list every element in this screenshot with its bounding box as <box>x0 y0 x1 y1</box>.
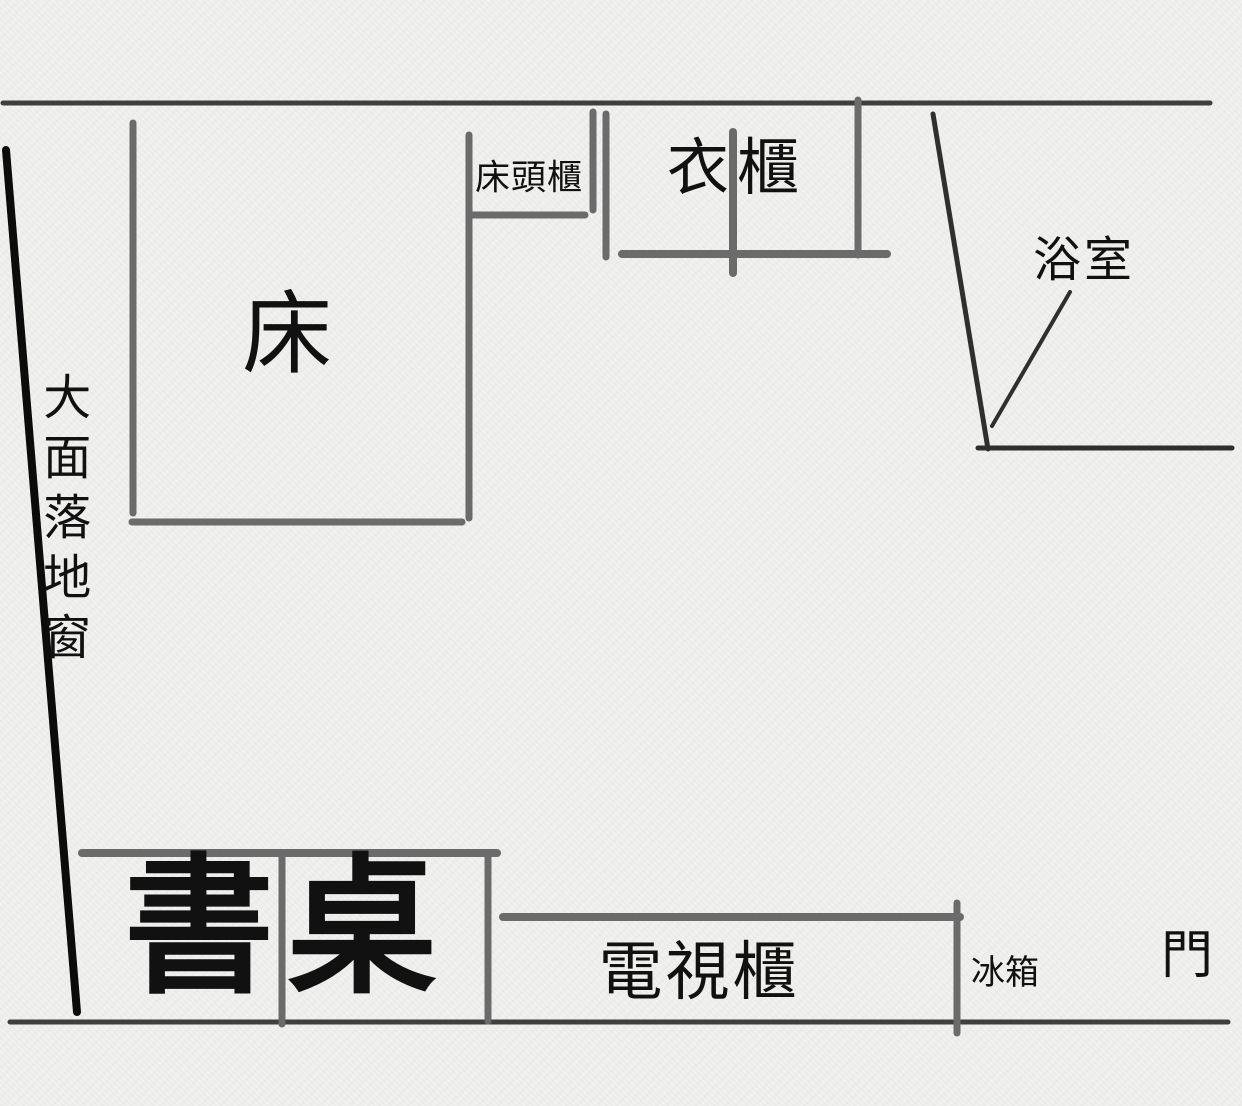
bathroom-left-wall-line <box>933 114 988 449</box>
bed-label: 床 <box>242 290 332 380</box>
desk-label: 書桌 <box>124 852 450 1002</box>
floor-plan-canvas: 床 床頭櫃 衣櫃 浴室 大面落地窗 書桌 電視櫃 冰箱 門 <box>0 0 1242 1106</box>
nightstand-label: 床頭櫃 <box>475 161 583 196</box>
tv-cabinet-label: 電視櫃 <box>599 940 800 1004</box>
wardrobe-label: 衣櫃 <box>667 138 807 200</box>
bathroom-pointer-line <box>992 292 1070 426</box>
door-label: 門 <box>1161 930 1213 982</box>
fridge-label: 冰箱 <box>971 956 1039 990</box>
bathroom-label: 浴室 <box>1033 237 1135 285</box>
window-label: 大面落地窗 <box>36 372 86 672</box>
